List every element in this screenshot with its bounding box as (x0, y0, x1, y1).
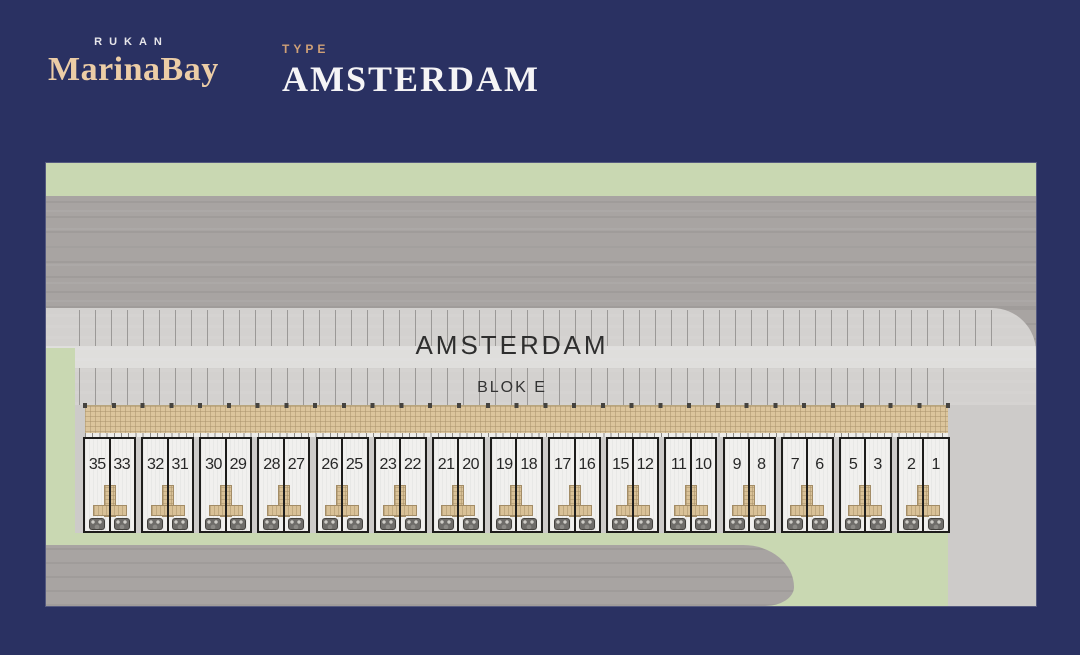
unit-number: 8 (749, 456, 774, 474)
unit-number: 10 (691, 456, 716, 474)
party-wall (574, 439, 576, 531)
unit-pair: 3029 (199, 437, 252, 533)
brand-logo: RUKAN MarinaBay (48, 36, 208, 89)
car-icon (903, 518, 919, 530)
brand-top-label: RUKAN (48, 36, 208, 48)
unit-number: 2 (899, 456, 924, 474)
party-wall (632, 439, 634, 531)
car-icon (288, 518, 304, 530)
unit-number: 6 (807, 456, 832, 474)
unit-number: 29 (226, 456, 251, 474)
car-icon (263, 518, 279, 530)
car-icon (205, 518, 221, 530)
unit-pair: 1918 (490, 437, 543, 533)
brand-name: MarinaBay (48, 51, 208, 89)
car-icon (637, 518, 653, 530)
unit-pair: 1512 (606, 437, 659, 533)
unit-number: 9 (725, 456, 750, 474)
unit-number: 11 (666, 456, 691, 474)
unit-number: 18 (516, 456, 541, 474)
party-wall (748, 439, 750, 531)
car-icon (230, 518, 246, 530)
party-wall (399, 439, 401, 531)
grass-strip-left (46, 348, 75, 545)
car-icon (554, 518, 570, 530)
unit-number: 20 (458, 456, 483, 474)
unit-pair: 2827 (257, 437, 310, 533)
car-icon (754, 518, 770, 530)
type-value-title: AMSTERDAM (282, 61, 540, 97)
car-icon (695, 518, 711, 530)
car-icon (870, 518, 886, 530)
unit-number: 7 (783, 456, 808, 474)
car-icon (322, 518, 338, 530)
unit-number: 3 (865, 456, 890, 474)
parking-area: AMSTERDAM BLOK E (46, 308, 1036, 405)
car-icon (845, 518, 861, 530)
car-icon (670, 518, 686, 530)
car-icon (147, 518, 163, 530)
road-top (46, 196, 1036, 308)
car-icon (521, 518, 537, 530)
car-icon (787, 518, 803, 530)
unit-number: 21 (434, 456, 459, 474)
units-row: 3533323130292827262523222120191817161512… (83, 437, 950, 533)
unit-pair: 2625 (316, 437, 369, 533)
party-wall (225, 439, 227, 531)
unit-number: 15 (608, 456, 633, 474)
type-block: TYPE AMSTERDAM (282, 42, 540, 97)
unit-pair: 76 (781, 437, 834, 533)
unit-pair: 98 (723, 437, 776, 533)
canopy-posts (83, 403, 950, 408)
car-icon (579, 518, 595, 530)
unit-pair: 3533 (83, 437, 136, 533)
party-wall (864, 439, 866, 531)
plan-block-label: BLOK E (46, 378, 978, 397)
car-icon (463, 518, 479, 530)
unit-number: 26 (318, 456, 343, 474)
unit-number: 12 (633, 456, 658, 474)
type-label: TYPE (282, 42, 540, 56)
plan-area-title: AMSTERDAM (46, 330, 978, 361)
unit-pair: 2322 (374, 437, 427, 533)
unit-number: 28 (259, 456, 284, 474)
party-wall (109, 439, 111, 531)
road-bottom (46, 545, 794, 606)
unit-pair: 1716 (548, 437, 601, 533)
car-icon (928, 518, 944, 530)
unit-pair: 3231 (141, 437, 194, 533)
unit-number: 32 (143, 456, 168, 474)
unit-pair: 53 (839, 437, 892, 533)
unit-pair: 1110 (664, 437, 717, 533)
unit-number: 23 (376, 456, 401, 474)
siteplan: AMSTERDAM BLOK E 35333231302928272625232… (46, 163, 1036, 606)
car-icon (380, 518, 396, 530)
car-icon (729, 518, 745, 530)
party-wall (167, 439, 169, 531)
car-icon (347, 518, 363, 530)
party-wall (283, 439, 285, 531)
car-icon (812, 518, 828, 530)
unit-number: 33 (110, 456, 135, 474)
unit-number: 27 (284, 456, 309, 474)
car-icon (496, 518, 512, 530)
unit-number: 30 (201, 456, 226, 474)
unit-number: 19 (492, 456, 517, 474)
unit-number: 17 (550, 456, 575, 474)
party-wall (457, 439, 459, 531)
car-icon (89, 518, 105, 530)
car-icon (172, 518, 188, 530)
party-wall (341, 439, 343, 531)
car-icon (114, 518, 130, 530)
car-icon (612, 518, 628, 530)
unit-pair: 2120 (432, 437, 485, 533)
unit-number: 16 (575, 456, 600, 474)
canopy-strip (85, 405, 948, 437)
party-wall (515, 439, 517, 531)
party-wall (690, 439, 692, 531)
unit-number: 22 (400, 456, 425, 474)
unit-number: 31 (168, 456, 193, 474)
page: RUKAN MarinaBay TYPE AMSTERDAM AMSTERDAM… (0, 0, 1080, 655)
car-icon (438, 518, 454, 530)
grass-strip-top (46, 163, 1036, 196)
unit-number: 35 (85, 456, 110, 474)
party-wall (806, 439, 808, 531)
car-icon (405, 518, 421, 530)
unit-number: 5 (841, 456, 866, 474)
unit-number: 1 (923, 456, 948, 474)
party-wall (922, 439, 924, 531)
unit-number: 25 (342, 456, 367, 474)
unit-pair: 21 (897, 437, 950, 533)
